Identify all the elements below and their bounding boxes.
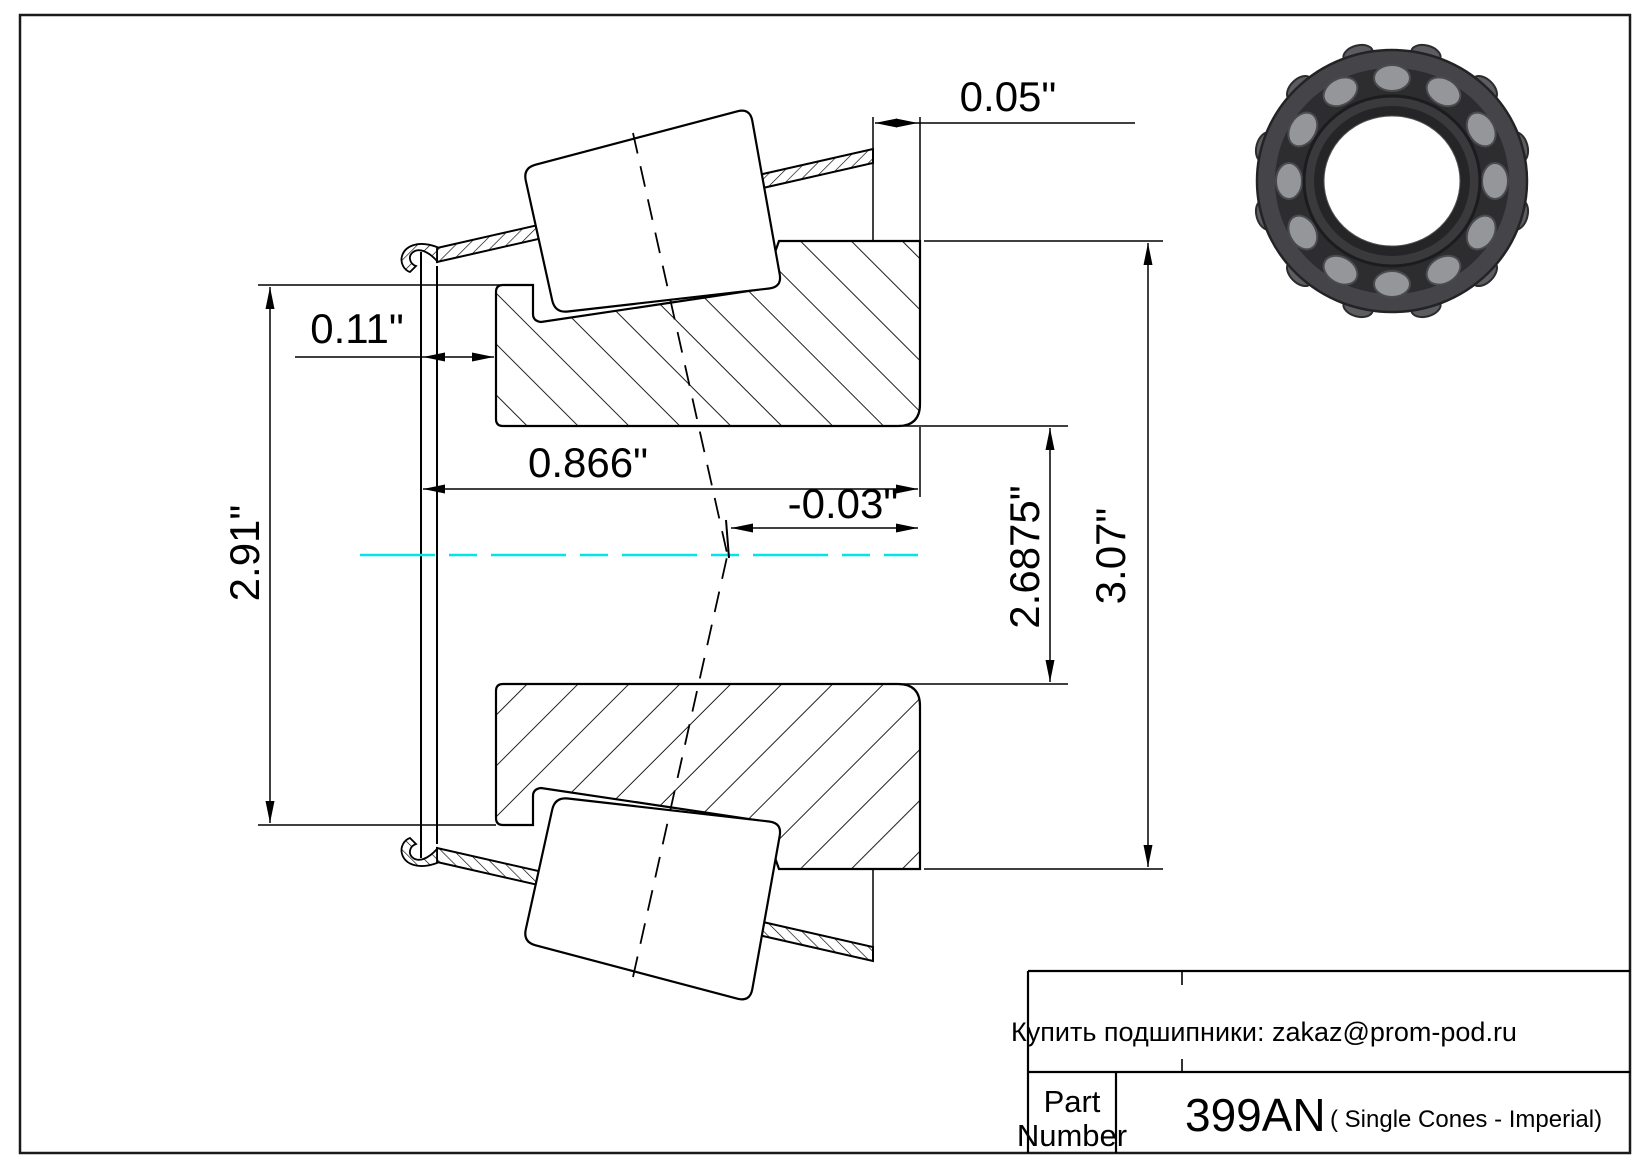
dim-effective-center: -0.03" (731, 480, 918, 533)
contact-text: Купить подшипники: zakaz@prom-pod.ru (1011, 1017, 1517, 1047)
dim-label: 0.11" (310, 305, 404, 352)
cone-half-section-mirror (401, 555, 920, 999)
dim-label: -0.03" (788, 480, 899, 527)
bearing-photo (1253, 42, 1531, 320)
dim-label: 2.91" (221, 505, 268, 602)
dim-large-end-od: 3.07" (1087, 243, 1153, 867)
part-label-line2: Number (1017, 1118, 1127, 1153)
part-series-text: ( Single Cones - Imperial) (1330, 1106, 1602, 1133)
title-block: Купить подшипники: zakaz@prom-pod.ru Par… (1011, 971, 1630, 1153)
dim-cage-small-od: 2.91" (221, 287, 275, 823)
part-label-line1: Part (1044, 1084, 1101, 1119)
drawing-sheet: 0.05" 0.11" 2.91" 0.866" -0.03" 2.6875" … (0, 0, 1649, 1167)
apex-tick (726, 520, 729, 558)
dim-bore-diameter: 2.6875" (1001, 428, 1055, 682)
dim-label: 0.866" (528, 439, 648, 486)
dim-label: 0.05" (960, 73, 1057, 120)
part-number-value: 399AN (1185, 1089, 1326, 1141)
dim-front-face-step: 0.11" (295, 305, 494, 362)
bore-hole (1324, 116, 1460, 246)
cage-hook (401, 244, 437, 272)
dim-label: 2.6875" (1001, 485, 1048, 628)
tapered-roller (525, 111, 780, 312)
dim-cage-protrusion: 0.05" (875, 73, 1135, 128)
engineering-drawing: 0.05" 0.11" 2.91" 0.866" -0.03" 2.6875" … (0, 0, 1649, 1167)
dim-label: 3.07" (1087, 508, 1134, 605)
